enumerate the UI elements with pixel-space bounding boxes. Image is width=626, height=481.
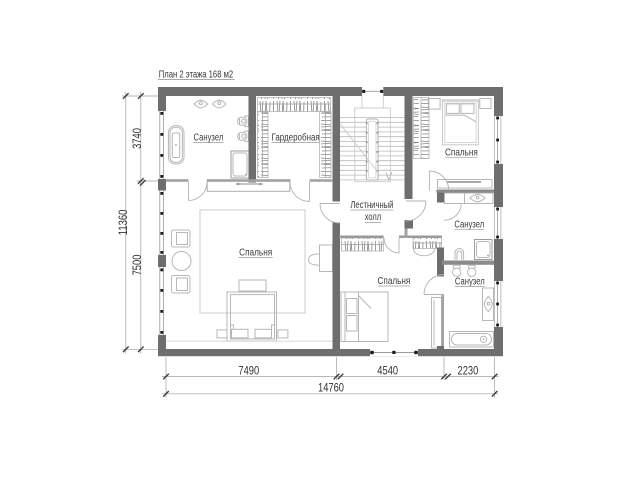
svg-text:Гардеробная: Гардеробная xyxy=(271,132,319,144)
svg-text:7490: 7490 xyxy=(238,363,259,377)
svg-text:3740: 3740 xyxy=(130,128,144,149)
svg-text:холл: холл xyxy=(365,212,381,223)
svg-text:Спальня: Спальня xyxy=(445,147,478,158)
svg-text:11360: 11360 xyxy=(116,209,130,235)
svg-text:Санузел: Санузел xyxy=(455,276,485,287)
svg-text:План 2 этажа 168 м2: План 2 этажа 168 м2 xyxy=(159,69,233,81)
svg-text:Санузел: Санузел xyxy=(454,219,484,230)
svg-text:Спальня: Спальня xyxy=(378,276,411,287)
svg-text:Санузел: Санузел xyxy=(194,133,224,144)
svg-text:7500: 7500 xyxy=(130,254,144,275)
svg-text:4540: 4540 xyxy=(377,363,398,377)
svg-text:Лестничный: Лестничный xyxy=(350,200,393,211)
svg-text:2230: 2230 xyxy=(458,363,479,377)
svg-text:Спальня: Спальня xyxy=(239,248,272,259)
svg-text:14760: 14760 xyxy=(318,381,344,395)
